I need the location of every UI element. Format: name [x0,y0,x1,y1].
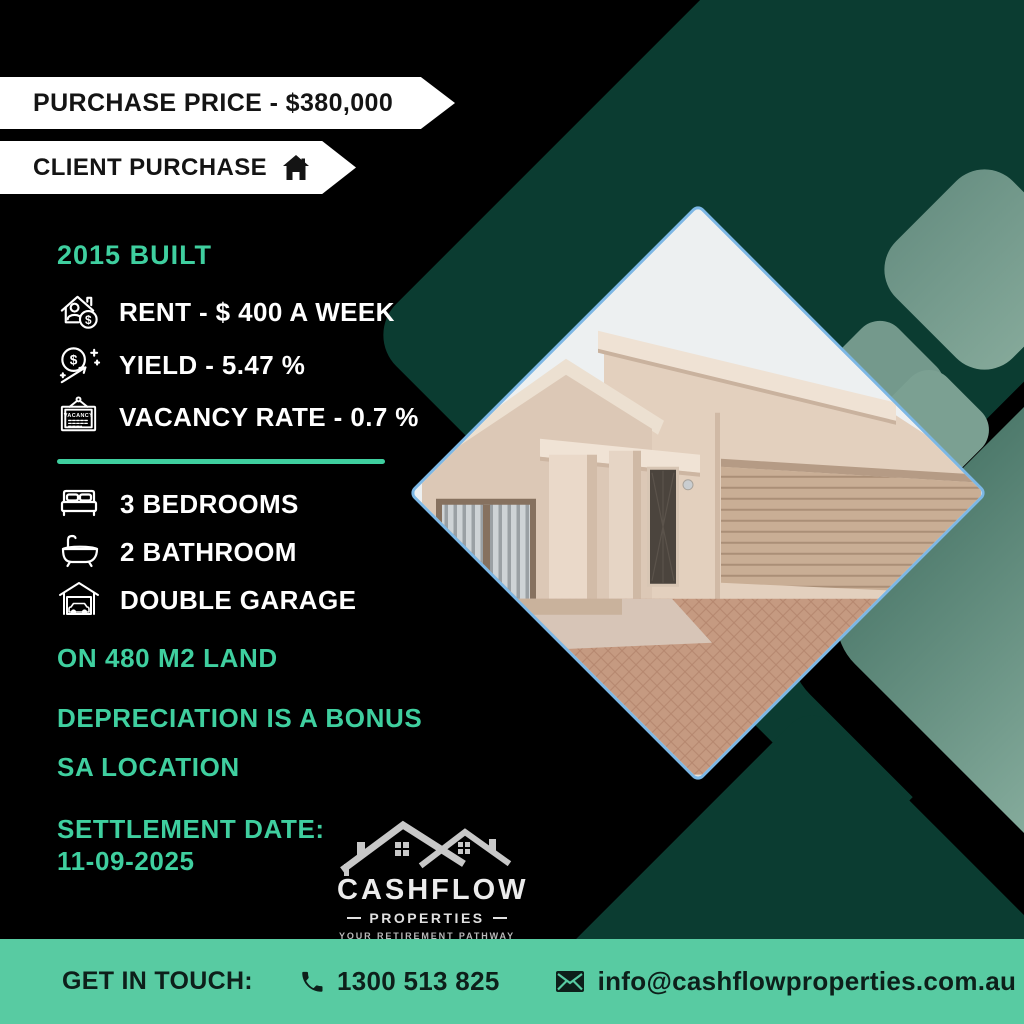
yield-icon: $ [55,342,102,389]
phone-contact[interactable]: 1300 513 825 [299,966,500,997]
settlement-date-label: SETTLEMENT DATE: [57,813,325,845]
divider-line [57,459,385,464]
company-logo: CASHFLOW PROPERTIES YOUR RETIREMENT PATH… [337,812,517,941]
settlement-date: SETTLEMENT DATE: 11-09-2025 [57,813,325,877]
bathroom-label: 2 BATHROOM [120,537,297,568]
house-icon [281,154,311,182]
settlement-date-value: 11-09-2025 [57,845,325,877]
get-in-touch-label: GET IN TOUCH: [62,967,253,996]
client-purchase-text: CLIENT PURCHASE [33,154,267,182]
rent-label: RENT - $ 400 A WEEK [119,297,395,328]
email-icon [556,971,584,992]
svg-text:$: $ [85,314,92,327]
rent-house-icon: $ [55,289,102,336]
bath-icon [55,528,103,576]
vacancy-label: VACANCY RATE - 0.7 % [119,402,419,433]
svg-text:$: $ [70,353,78,368]
stat-row-vacancy: VACANCY VACANCY RATE - 0.7 % [55,394,419,441]
purchase-price-text: PURCHASE PRICE - $380,000 [33,89,393,118]
client-purchase-banner: CLIENT PURCHASE [0,141,356,194]
logo-dash-right [493,917,507,919]
phone-icon [299,969,325,995]
logo-subtitle: PROPERTIES [337,910,517,926]
vacancy-sign-text: VACANCY [64,413,93,419]
email-address: info@cashflowproperties.com.au [598,966,1017,997]
garage-icon [55,576,103,624]
vacancy-icon: VACANCY [55,394,102,441]
bed-icon [55,480,103,528]
stat-row-yield: $ YIELD - 5.47 % [55,342,305,389]
depreciation-text: DEPRECIATION IS A BONUS [57,703,422,734]
yield-label: YIELD - 5.47 % [119,350,305,381]
logo-roofs-icon [339,812,515,876]
bedrooms-label: 3 BEDROOMS [120,489,299,520]
logo-subtitle-text: PROPERTIES [369,910,484,926]
feature-row-bedrooms: 3 BEDROOMS [55,480,299,528]
land-size-text: ON 480 M2 LAND [57,643,278,674]
garage-label: DOUBLE GARAGE [120,585,356,616]
stat-row-rent: $ RENT - $ 400 A WEEK [55,289,395,336]
feature-row-bathroom: 2 BATHROOM [55,528,297,576]
purchase-price-banner: PURCHASE PRICE - $380,000 [0,77,455,129]
location-text: SA LOCATION [57,752,240,783]
email-contact[interactable]: info@cashflowproperties.com.au [556,966,1017,997]
logo-name: CASHFLOW [337,874,517,907]
contact-bar: GET IN TOUCH: 1300 513 825 info@cashflow… [0,939,1024,1024]
flyer-canvas: PURCHASE PRICE - $380,000 CLIENT PURCHAS… [0,0,1024,1024]
feature-row-garage: DOUBLE GARAGE [55,576,356,624]
built-year: 2015 BUILT [57,240,212,271]
phone-number: 1300 513 825 [337,966,500,997]
logo-dash-left [347,917,361,919]
